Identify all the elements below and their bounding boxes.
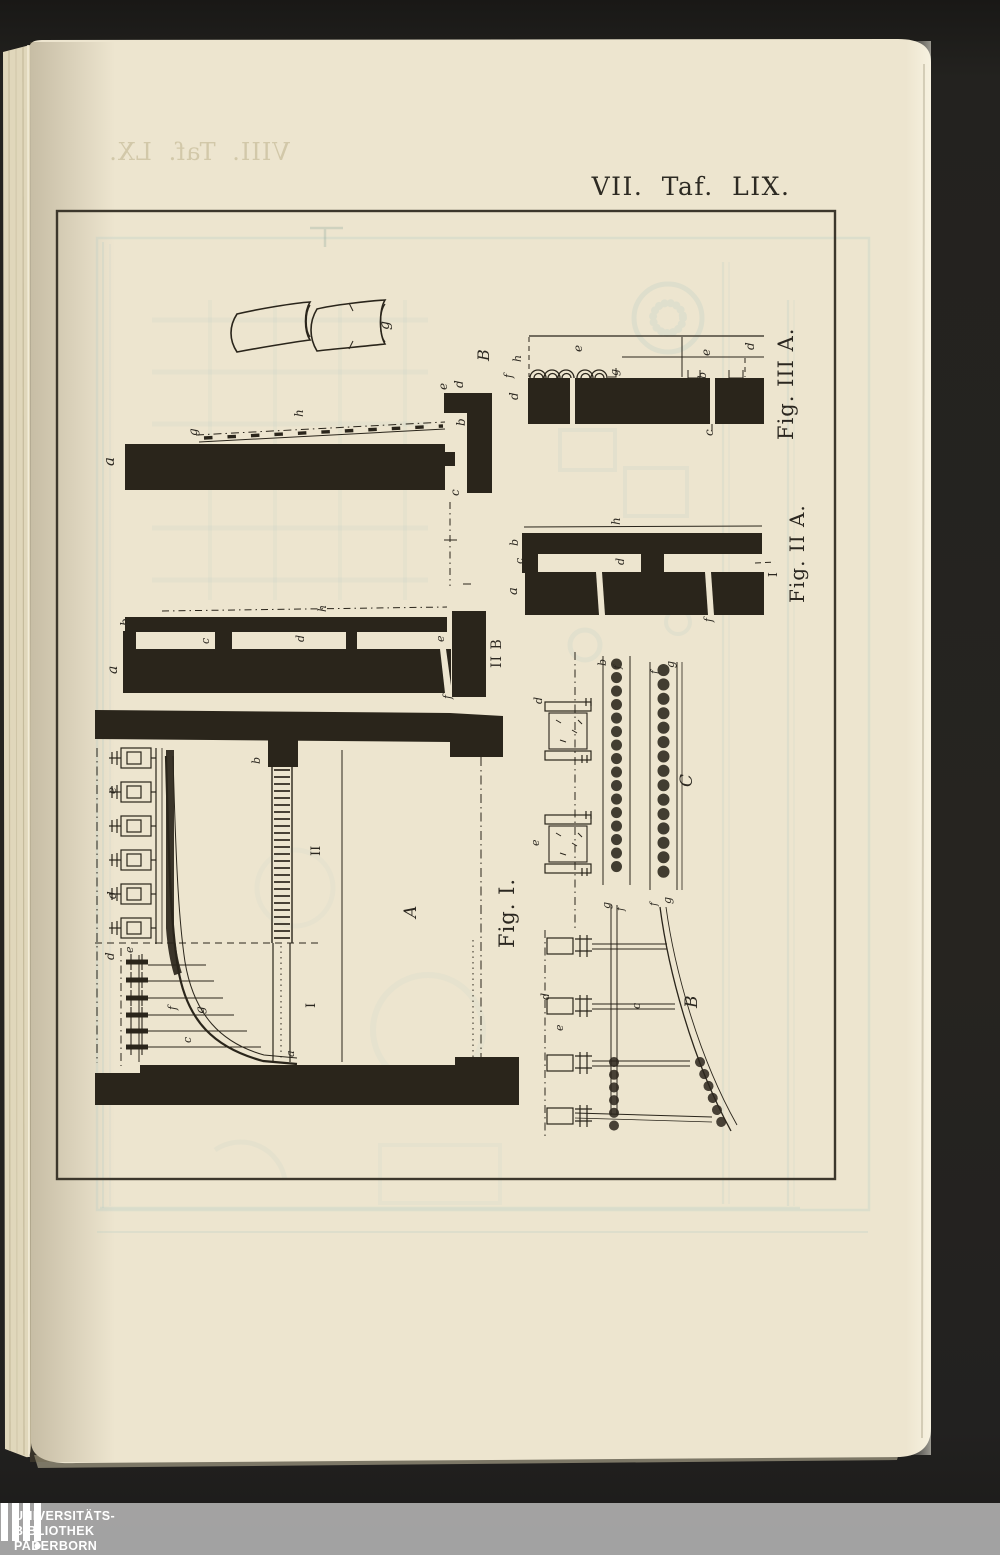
part-label-a: a: [284, 1050, 297, 1057]
fig2b-caption: II B: [489, 638, 505, 668]
part-label-c: c: [448, 489, 462, 496]
part-label-d: d: [532, 697, 545, 704]
part-label-d: d: [452, 380, 466, 388]
part-label-d: d: [743, 342, 757, 350]
part-label-c: c: [199, 638, 212, 644]
part-label-h: h: [316, 605, 329, 612]
part-label-c: c: [181, 1037, 194, 1043]
part-label-II: II: [309, 846, 324, 856]
part-label-g: g: [664, 661, 677, 668]
part-label-e: e: [123, 946, 136, 953]
scanned-book-photo: VIII. Taf. LX. VII. Taf. LIX.: [0, 0, 1000, 1555]
part-label-e: e: [434, 635, 447, 642]
part-label-I: I: [766, 572, 780, 577]
part-label-A: A: [401, 906, 421, 920]
part-label-d: d: [507, 392, 521, 400]
part-label-d: d: [614, 558, 627, 565]
part-label-e: e: [699, 349, 713, 356]
part-label-h: h: [511, 355, 524, 362]
part-label-a: a: [105, 666, 121, 674]
part-label-c: c: [630, 1003, 643, 1009]
part-label-g: g: [608, 369, 621, 376]
bleedthrough-plate-number: VIII. Taf. LX.: [108, 138, 290, 166]
part-label-d: d: [539, 993, 552, 1000]
part-label-h: h: [292, 409, 306, 417]
fig2a-caption: Fig. II A.: [785, 504, 809, 603]
part-label-g: g: [193, 1006, 207, 1014]
part-label-b: b: [508, 539, 521, 546]
part-label-b: b: [118, 618, 132, 626]
part-label-d: d: [105, 891, 119, 899]
part-label-a: a: [100, 457, 118, 466]
part-label-g: g: [661, 897, 674, 904]
fig1-caption: Fig. I.: [495, 878, 519, 948]
part-label-b: b: [596, 659, 609, 666]
plate-number: VII. Taf. LIX.: [591, 172, 791, 201]
part-label-h: h: [609, 517, 623, 525]
part-label-b: b: [454, 418, 468, 426]
part-label-e: e: [105, 787, 119, 794]
part-label-I: I: [304, 1003, 319, 1008]
part-label-c: c: [702, 429, 716, 436]
part-label-a: a: [506, 587, 521, 595]
library-watermark-band: UNIVERSITÄTS- BIBLIOTHEK PADERBORN: [0, 1503, 1000, 1555]
part-label-e: e: [553, 1024, 566, 1031]
part-label-B: B: [682, 996, 702, 1010]
part-label-B: B: [474, 349, 493, 362]
fig2b-section: [123, 607, 486, 697]
part-label-e: e: [571, 345, 585, 352]
part-label-e: e: [529, 839, 542, 846]
part-label-d: d: [294, 635, 307, 642]
part-label-d: d: [103, 952, 117, 960]
part-label-g: g: [186, 428, 200, 436]
part-label-b: b: [250, 757, 263, 764]
barcode-logo-icon: [0, 1503, 50, 1549]
part-label-b: b: [696, 372, 709, 379]
part-label-c: c: [513, 558, 526, 564]
part-label-g: g: [600, 902, 613, 909]
part-label-e: e: [436, 383, 450, 390]
part-label-C: C: [677, 774, 697, 787]
scan-canvas: VIII. Taf. LX. VII. Taf. LIX.: [0, 0, 1000, 1555]
part-label-g: g: [377, 321, 393, 330]
fig3a-caption: Fig. III A.: [774, 328, 798, 440]
